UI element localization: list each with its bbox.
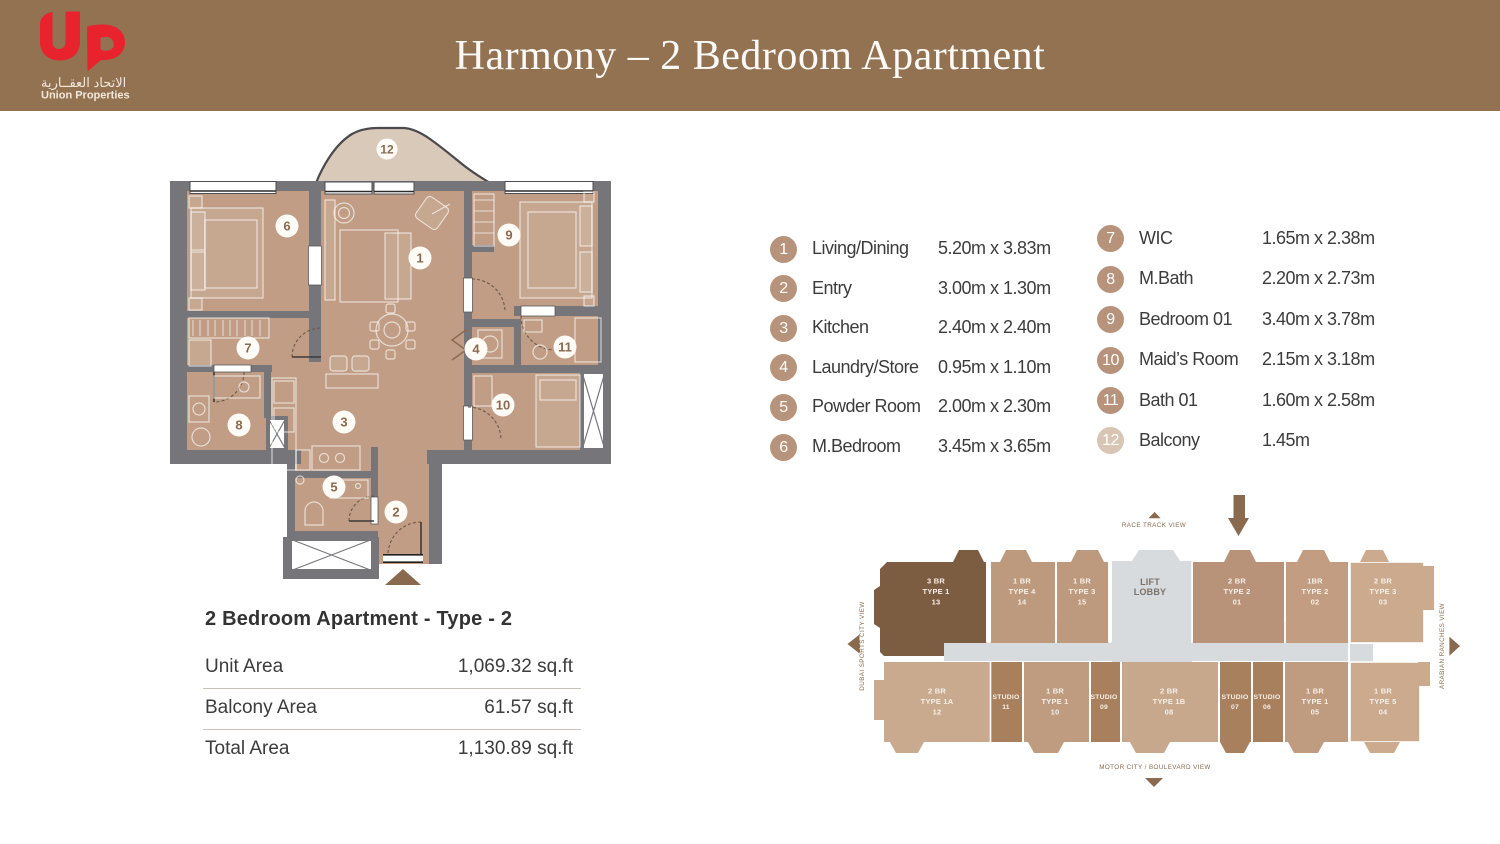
- svg-text:MOTOR CITY / BOULEVARD VIEW: MOTOR CITY / BOULEVARD VIEW: [1099, 764, 1211, 771]
- svg-text:ARABIAN RANCHES VIEW: ARABIAN RANCHES VIEW: [1439, 603, 1446, 689]
- svg-text:8: 8: [235, 418, 242, 433]
- svg-text:10: 10: [496, 398, 510, 413]
- svg-text:7: 7: [244, 341, 251, 356]
- svg-text:2: 2: [392, 505, 399, 520]
- svg-text:11: 11: [558, 340, 572, 355]
- svg-text:DUBAI SPORTS CITY VIEW: DUBAI SPORTS CITY VIEW: [859, 601, 866, 690]
- svg-text:5: 5: [330, 480, 337, 495]
- svg-text:1: 1: [416, 251, 423, 266]
- svg-text:4: 4: [472, 342, 480, 357]
- svg-text:12: 12: [380, 143, 394, 157]
- svg-text:6: 6: [283, 219, 290, 234]
- svg-text:9: 9: [505, 228, 512, 243]
- svg-text:3: 3: [340, 415, 347, 430]
- svg-text:RACE TRACK VIEW: RACE TRACK VIEW: [1122, 522, 1186, 529]
